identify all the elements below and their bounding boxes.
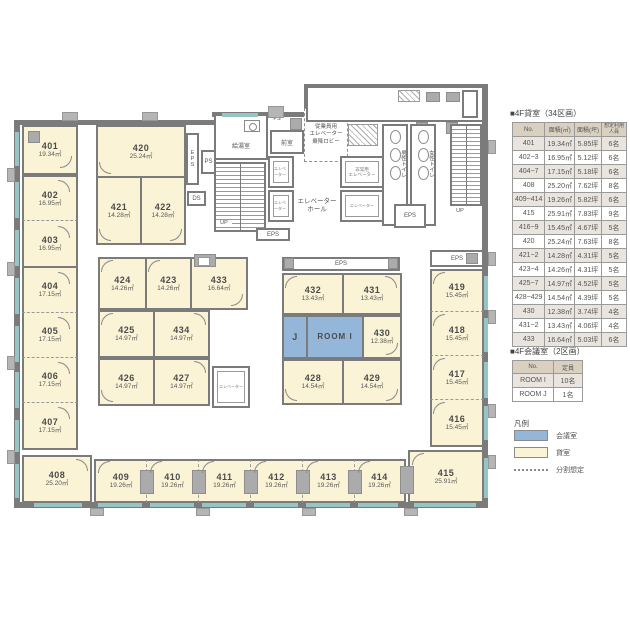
- room-406: 40617.15㎡: [22, 357, 78, 404]
- up-label: UP: [452, 208, 468, 215]
- ds-shaft: DS: [187, 191, 206, 206]
- table-row: 416~915.45㎡4.67坪5名: [513, 221, 627, 235]
- facade-fin: [7, 450, 15, 464]
- window-segment: [254, 503, 298, 507]
- legend-item-division: 分割想定: [514, 465, 584, 475]
- equipment-box: [388, 258, 398, 269]
- window-segment: [150, 503, 194, 507]
- legend-swatch-meeting: [514, 430, 548, 441]
- rent-table-header-row: No. 面積(㎡) 面積(坪) 想定利用人員: [513, 123, 627, 137]
- facade-fin: [302, 508, 316, 516]
- room-407: 40717.15㎡: [22, 402, 78, 450]
- window-segment: [15, 278, 19, 314]
- window-segment: [15, 326, 19, 362]
- room-403: 40316.95㎡: [22, 220, 78, 268]
- window-segment: [306, 503, 350, 507]
- equipment-box: [426, 92, 440, 102]
- window-segment: [358, 503, 398, 507]
- table-row: 409~41419.26㎡5.82坪6名: [513, 193, 627, 207]
- equipment-box: [284, 258, 294, 269]
- col-header-tsubo: 面積(坪): [574, 123, 601, 137]
- service-shaft: [462, 90, 478, 118]
- elevator-2: エレベーター: [268, 190, 294, 222]
- stairs-right: [450, 124, 482, 206]
- anteroom: 前室: [270, 130, 304, 154]
- col-header-capacity: 想定利用人員: [601, 123, 626, 137]
- table-row: 43316.64㎡5.03坪6名: [513, 333, 627, 347]
- table-row: ROOM I10名: [513, 374, 583, 388]
- facade-fin: [90, 508, 104, 516]
- col-header-sqm: 面積(㎡): [545, 123, 575, 137]
- col-header-no: No.: [513, 123, 545, 137]
- window-segment: [98, 503, 142, 507]
- legend-dotted-line: [514, 469, 548, 471]
- column-block: [348, 470, 362, 494]
- window-segment: [15, 132, 19, 166]
- window-segment: [484, 276, 488, 310]
- legend-title: 凡例: [514, 418, 529, 429]
- table-row: ROOM J1名: [513, 388, 583, 402]
- eps-shaft-left: EPS: [186, 133, 199, 185]
- window-segment: [202, 503, 246, 507]
- meeting-table: No. 定員 ROOM I10名 ROOM J1名: [512, 360, 583, 402]
- table-row: 43012.38㎡3.74坪4名: [513, 305, 627, 319]
- table-row: 40825.20㎡7.62坪8名: [513, 179, 627, 193]
- room-404: 40417.15㎡: [22, 266, 78, 314]
- column-block: [296, 470, 310, 494]
- table-row: 423~414.26㎡4.31坪5名: [513, 263, 627, 277]
- window-segment: [414, 503, 476, 507]
- facade-fin: [488, 310, 496, 324]
- column-block: [244, 470, 258, 494]
- rent-section-title: ■4F貸室（34区画）: [510, 108, 581, 119]
- facade-fin: [488, 252, 496, 266]
- column-block: [140, 470, 154, 494]
- table-row: 402~316.95㎡5.12坪6名: [513, 151, 627, 165]
- col-header-capacity: 定員: [554, 361, 583, 374]
- hatched-area: [348, 124, 378, 146]
- toilet-fixture-icon: [418, 130, 429, 144]
- table-row: 40119.34㎡5.85坪6名: [513, 137, 627, 151]
- legend-swatch-rent: [514, 447, 548, 458]
- table-row: 421~214.28㎡4.31坪5名: [513, 249, 627, 263]
- rent-table: No. 面積(㎡) 面積(坪) 想定利用人員 40119.34㎡5.85坪6名 …: [512, 122, 627, 347]
- facade-fin: [488, 455, 496, 469]
- window-segment: [15, 230, 19, 266]
- window-segment: [484, 362, 488, 398]
- facade-fin: [268, 106, 284, 118]
- col-header-no: No.: [513, 361, 554, 374]
- table-row: 428~42914.54㎡4.39坪5名: [513, 291, 627, 305]
- table-row: 431~213.43㎡4.06坪4名: [513, 319, 627, 333]
- legend-item-meeting: 会議室: [514, 430, 577, 441]
- emergency-elevator: 非常用 エレベーター: [340, 156, 384, 188]
- table-row: 404~717.15㎡5.18坪6名: [513, 165, 627, 179]
- toilet-fixture-icon: [390, 130, 401, 144]
- meeting-room-i: ROOM I: [306, 315, 364, 359]
- meeting-room-j: J: [282, 315, 308, 359]
- room-402: 40216.95㎡: [22, 175, 78, 222]
- facade-fin: [62, 112, 78, 121]
- table-row: 41525.91㎡7.83坪9名: [513, 207, 627, 221]
- pantry-fixture: [194, 254, 216, 267]
- window-segment: [15, 464, 19, 498]
- legend-item-rent: 貸室: [514, 447, 570, 458]
- room-405: 40517.15㎡: [22, 312, 78, 359]
- eps-room-center: EPS: [282, 257, 400, 271]
- column-block: [28, 131, 40, 143]
- elevator-3: エレベーター: [340, 190, 384, 222]
- sink-fixture: [244, 120, 260, 132]
- facade-fin: [7, 168, 15, 182]
- column-block: [192, 470, 206, 494]
- mens-toilet-label: 男性トイレ: [399, 150, 407, 178]
- hatched-area: [398, 90, 420, 102]
- eps-room-toilet: EPS: [394, 204, 426, 228]
- elevator-hall-label: エレベーター ホール: [292, 198, 342, 214]
- column-block: [400, 466, 414, 494]
- meeting-section-title: ■4F会議室（2区画）: [510, 346, 585, 357]
- womens-toilet-label: 女性トイレ: [427, 150, 435, 178]
- equipment-box: [446, 92, 460, 102]
- eps-room-core-bottom: EPS: [256, 228, 290, 241]
- up-label: UP: [216, 220, 232, 227]
- room-430: 43012.38㎡: [362, 315, 402, 359]
- meeting-table-header-row: No. 定員: [513, 361, 583, 374]
- service-elevator-cab: エレベーター: [217, 371, 245, 403]
- equipment-box: [290, 118, 302, 130]
- facade-fin: [196, 508, 210, 516]
- facade-fin: [488, 140, 496, 154]
- window-segment: [15, 182, 19, 218]
- window-segment: [222, 113, 258, 117]
- table-row: 425~714.97㎡4.52坪5名: [513, 277, 627, 291]
- facade-fin: [488, 404, 496, 418]
- window-segment: [34, 503, 82, 507]
- elevator-1: エレベーター: [268, 156, 294, 188]
- floor-plan-page: 40119.34㎡ 40216.95㎡ 40316.95㎡ 40417.15㎡ …: [0, 0, 630, 630]
- equipment-box: [466, 253, 478, 264]
- facade-fin: [7, 262, 15, 276]
- facade-fin: [142, 112, 158, 121]
- facade-fin: [7, 356, 15, 370]
- window-segment: [15, 420, 19, 452]
- service-elevator: エレベーター: [212, 366, 250, 408]
- table-row: 42025.24㎡7.63坪8名: [513, 235, 627, 249]
- window-segment: [15, 372, 19, 408]
- facade-fin: [404, 508, 418, 516]
